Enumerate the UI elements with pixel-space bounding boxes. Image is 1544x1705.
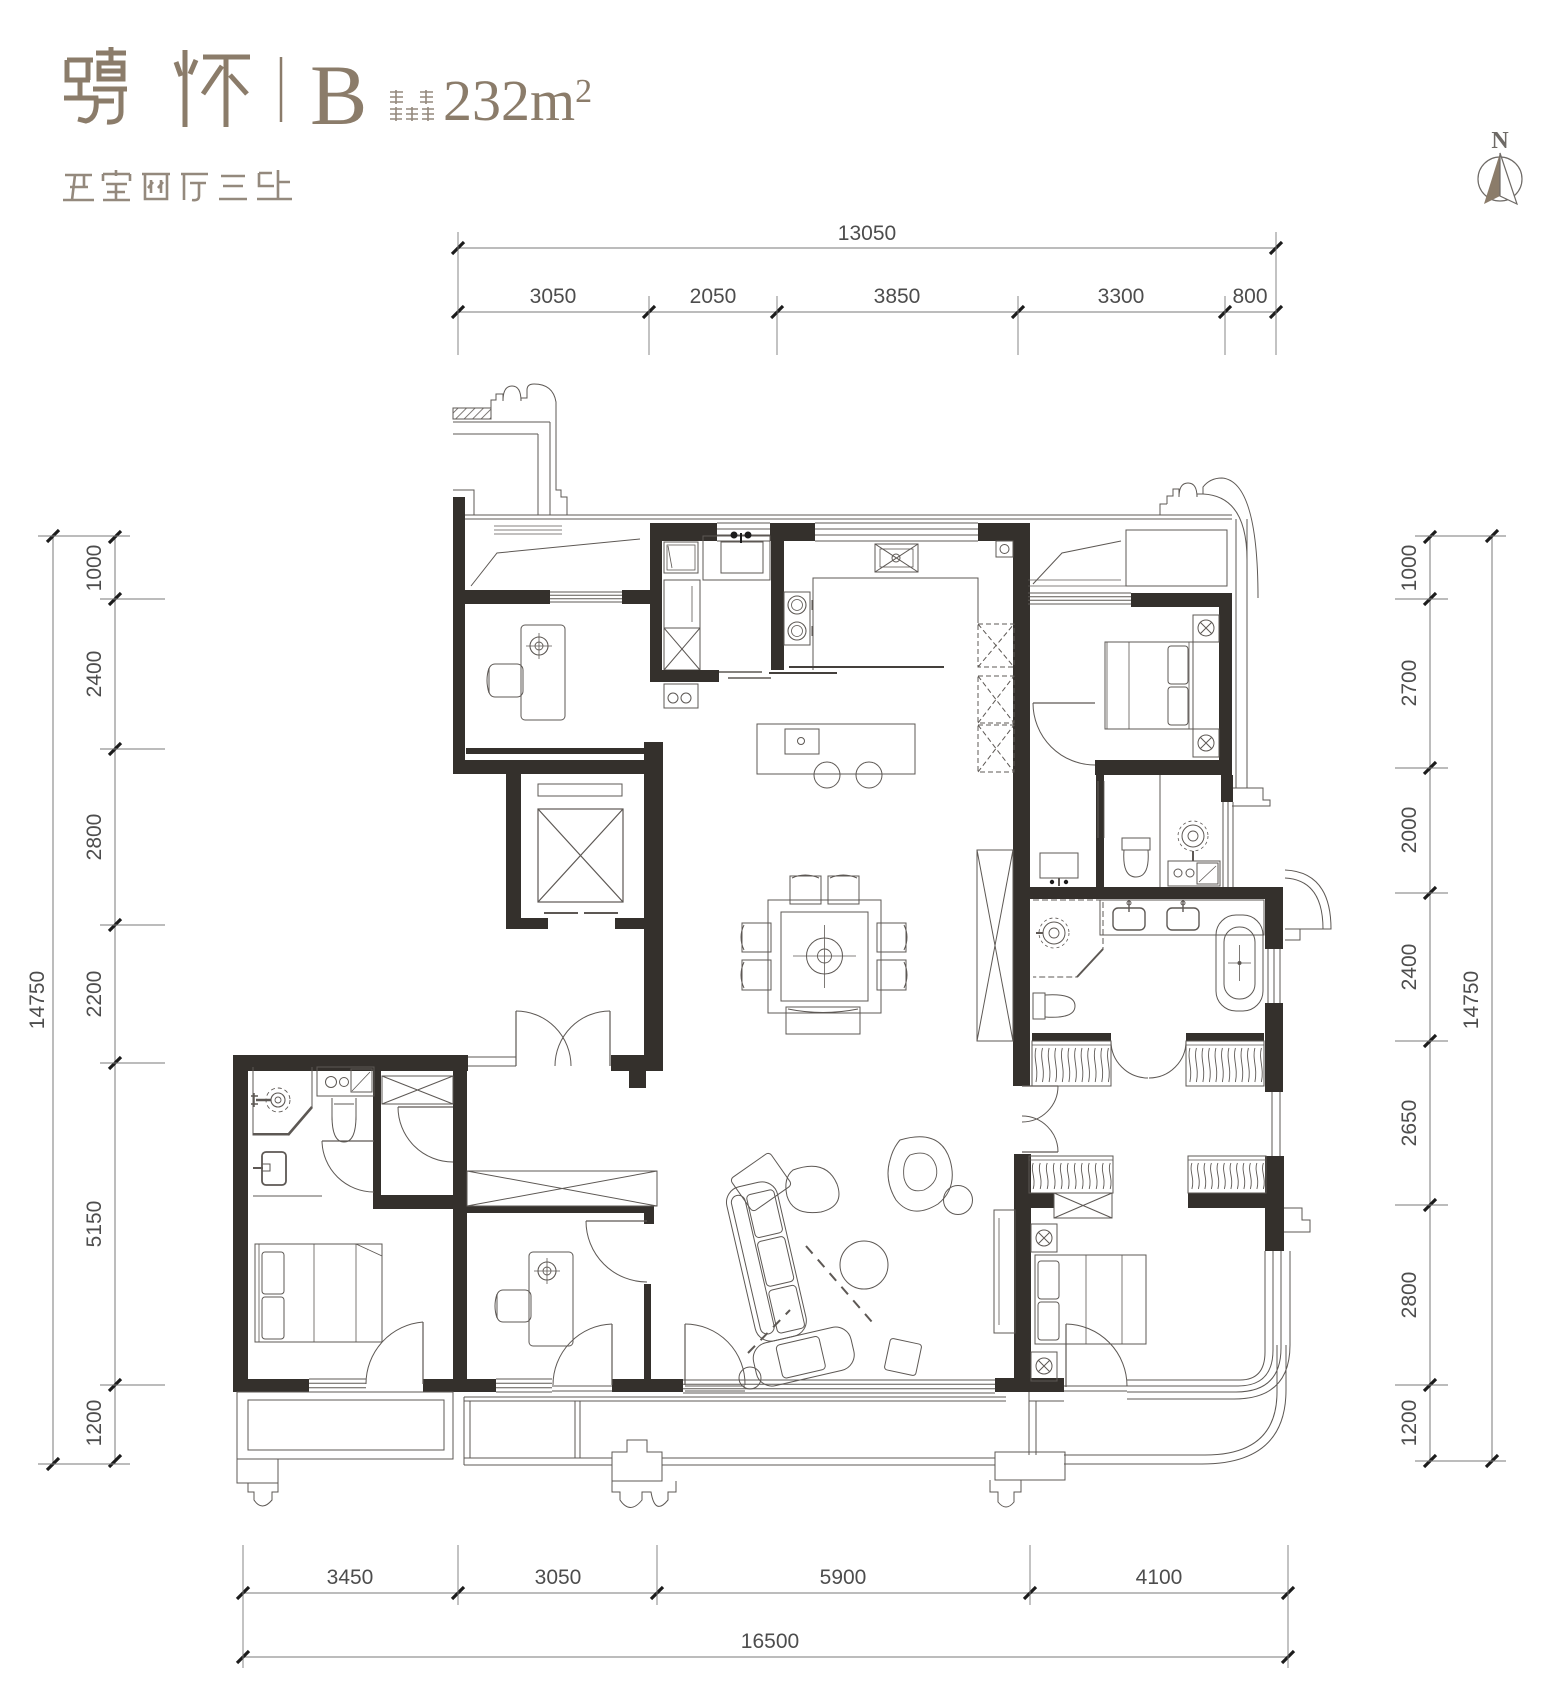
svg-text:B: B [310,47,367,143]
svg-text:13050: 13050 [838,222,896,245]
svg-text:5150: 5150 [83,1201,106,1248]
svg-text:2800: 2800 [83,814,106,861]
svg-text:N: N [1491,128,1509,154]
svg-text:1200: 1200 [1398,1400,1421,1447]
svg-text:2200: 2200 [83,971,106,1018]
svg-text:4100: 4100 [1136,1566,1183,1589]
svg-text:2400: 2400 [1398,944,1421,991]
svg-text:2050: 2050 [690,285,737,308]
svg-text:1200: 1200 [83,1400,106,1447]
svg-text:3450: 3450 [327,1566,374,1589]
svg-text:2000: 2000 [1398,807,1421,854]
svg-text:2650: 2650 [1398,1100,1421,1147]
svg-text:14750: 14750 [26,971,49,1029]
svg-text:1000: 1000 [83,545,106,592]
svg-text:2400: 2400 [83,651,106,698]
svg-text:2700: 2700 [1398,660,1421,707]
svg-text:14750: 14750 [1460,971,1483,1029]
svg-text:3300: 3300 [1098,285,1145,308]
svg-text:16500: 16500 [741,1630,799,1653]
svg-text:232m2: 232m2 [443,68,592,133]
svg-text:5900: 5900 [820,1566,867,1589]
svg-text:3050: 3050 [530,285,577,308]
svg-text:1000: 1000 [1398,545,1421,592]
svg-text:3850: 3850 [874,285,921,308]
svg-text:3050: 3050 [535,1566,582,1589]
svg-text:2800: 2800 [1398,1272,1421,1319]
svg-text:800: 800 [1232,285,1267,308]
